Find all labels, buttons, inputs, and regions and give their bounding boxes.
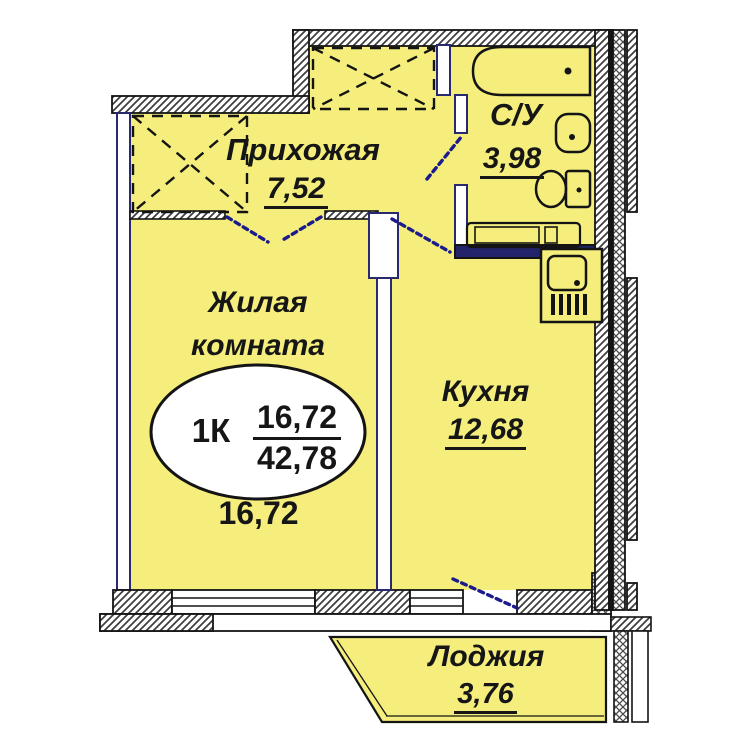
loggia-label: Лоджия xyxy=(389,641,584,673)
apartment-type: 1К xyxy=(181,414,241,449)
living-room-label-line1: Жилая xyxy=(148,287,368,319)
bathroom-area: 3,98 xyxy=(462,143,562,175)
kitchen-area: 12,68 xyxy=(398,414,573,446)
loggia-area: 3,76 xyxy=(408,679,563,709)
kitchen-sink-unit xyxy=(541,249,602,322)
badge-total-area: 42,78 xyxy=(257,440,337,477)
hallway-area: 7,52 xyxy=(241,173,351,205)
living-room-label-line2: комната xyxy=(148,330,368,362)
badge-living-area: 16,72 xyxy=(253,399,341,440)
floor-plan-drawing xyxy=(0,0,750,750)
floor-plan: Прихожая 7,52 С/У 3,98 Жилая комната 1К … xyxy=(0,0,750,750)
apartment-areas: 16,72 42,78 xyxy=(246,399,348,477)
bathroom-label: С/У xyxy=(468,99,564,132)
living-room-area: 16,72 xyxy=(176,497,341,531)
kitchen-label: Кухня xyxy=(398,376,573,408)
hallway-label: Прихожая xyxy=(193,134,413,167)
